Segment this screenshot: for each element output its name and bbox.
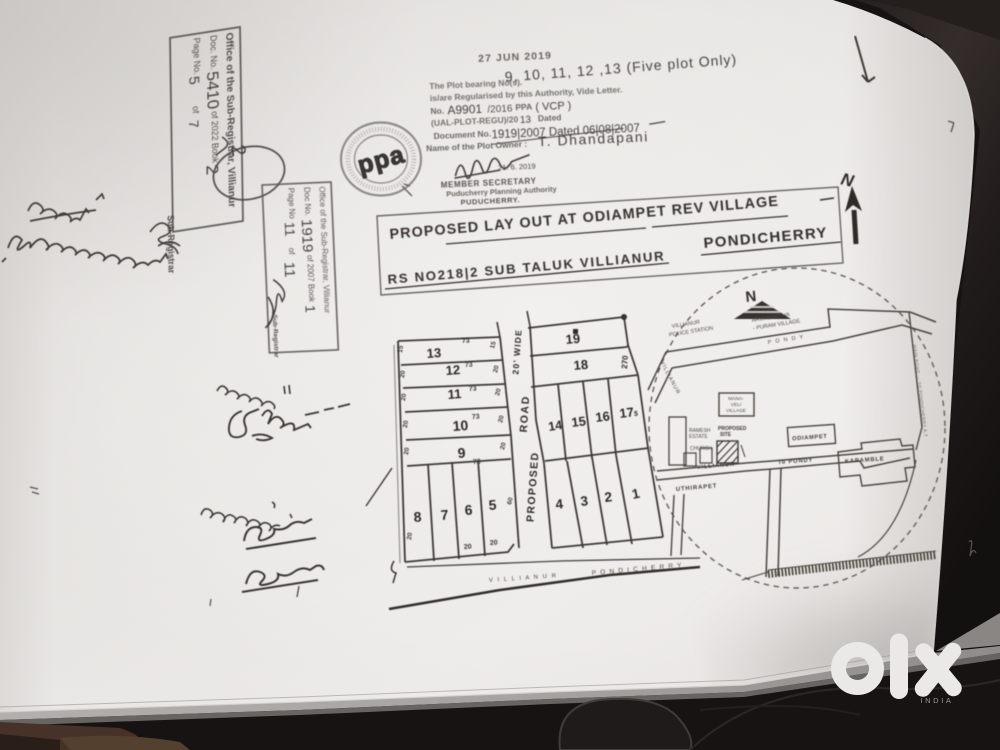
svg-text:Doc No.: Doc No. bbox=[302, 187, 312, 216]
svg-text:9: 9 bbox=[457, 444, 466, 461]
svg-text:5410: 5410 bbox=[203, 70, 222, 111]
svg-text:8: 8 bbox=[413, 508, 422, 525]
svg-text:73: 73 bbox=[465, 361, 473, 369]
svg-text:MANA-: MANA- bbox=[728, 396, 744, 402]
svg-text:20: 20 bbox=[402, 420, 410, 429]
svg-text:73: 73 bbox=[473, 458, 481, 466]
svg-text:15: 15 bbox=[571, 413, 587, 430]
svg-text:PPA: PPA bbox=[515, 102, 532, 113]
svg-text:73: 73 bbox=[469, 385, 477, 393]
svg-text:19: 19 bbox=[565, 331, 581, 347]
svg-text:21. 6. 2019: 21. 6. 2019 bbox=[498, 161, 536, 172]
svg-text:( VCP ): ( VCP ) bbox=[535, 100, 571, 114]
svg-text:No.: No. bbox=[430, 106, 444, 117]
svg-text:73: 73 bbox=[472, 413, 480, 421]
svg-text:Dated: Dated bbox=[538, 112, 562, 123]
svg-text:20: 20 bbox=[490, 539, 498, 547]
svg-text:20: 20 bbox=[406, 532, 414, 541]
svg-text:of 2022 Book: of 2022 Book bbox=[210, 110, 221, 164]
svg-text:12: 12 bbox=[445, 362, 460, 378]
svg-text:16: 16 bbox=[595, 408, 611, 425]
svg-text:of: of bbox=[287, 248, 296, 256]
svg-text:18: 18 bbox=[573, 357, 589, 373]
svg-text:VELI: VELI bbox=[731, 402, 741, 408]
svg-text:6: 6 bbox=[464, 501, 473, 518]
svg-text:11: 11 bbox=[447, 386, 462, 402]
svg-text:17: 17 bbox=[619, 404, 635, 421]
svg-text:20: 20 bbox=[399, 370, 407, 379]
svg-text:13: 13 bbox=[520, 115, 532, 127]
svg-text:2: 2 bbox=[604, 489, 613, 505]
svg-text:20: 20 bbox=[464, 543, 472, 551]
svg-text:14: 14 bbox=[547, 418, 563, 434]
svg-text:7: 7 bbox=[440, 506, 449, 523]
svg-text:A9901: A9901 bbox=[447, 102, 483, 118]
svg-text:Page No: Page No bbox=[286, 188, 296, 220]
svg-text:11: 11 bbox=[282, 221, 299, 236]
svg-text:ESTATE: ESTATE bbox=[689, 434, 708, 440]
svg-text:11: 11 bbox=[280, 262, 298, 278]
svg-text:5: 5 bbox=[488, 496, 497, 513]
svg-text:INDIA: INDIA bbox=[920, 696, 953, 705]
svg-text:5: 5 bbox=[634, 411, 638, 418]
svg-text:VILLAGE: VILLAGE bbox=[726, 408, 746, 414]
svg-text:15: 15 bbox=[397, 345, 405, 354]
svg-text:73: 73 bbox=[462, 337, 470, 345]
svg-text:N: N bbox=[745, 288, 758, 306]
svg-text:20: 20 bbox=[403, 447, 411, 456]
svg-text:270: 270 bbox=[620, 355, 630, 369]
svg-text:CHURCH: CHURCH bbox=[690, 446, 712, 452]
svg-text:Page No.: Page No. bbox=[192, 37, 202, 75]
svg-text:10: 10 bbox=[452, 417, 469, 434]
svg-text:Doc. No.: Doc. No. bbox=[209, 34, 219, 70]
svg-text:SITE: SITE bbox=[720, 432, 732, 438]
svg-text:13: 13 bbox=[426, 345, 441, 361]
svg-text:1: 1 bbox=[302, 305, 318, 314]
svg-text:20: 20 bbox=[400, 393, 408, 402]
svg-text:1919: 1919 bbox=[298, 219, 316, 253]
